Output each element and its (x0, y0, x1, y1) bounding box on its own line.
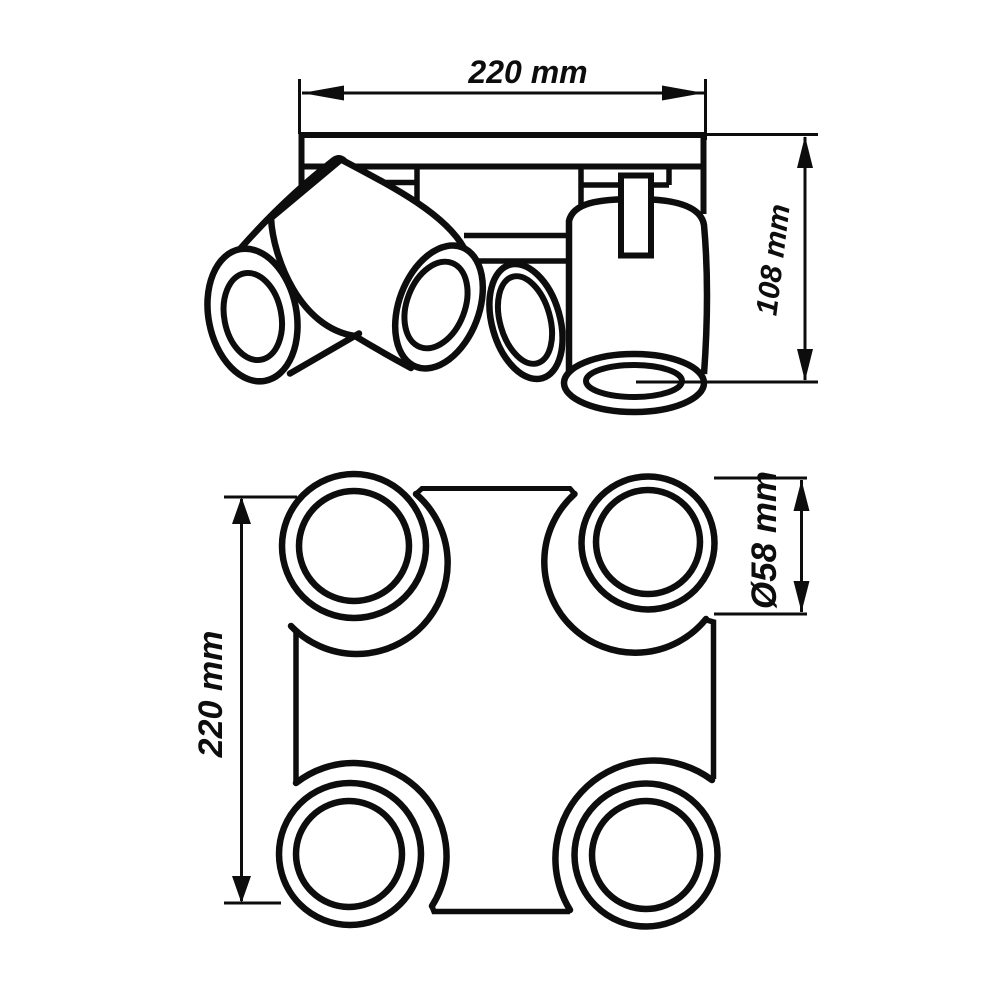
svg-text:220 mm: 220 mm (192, 631, 230, 759)
svg-text:220 mm: 220 mm (467, 54, 587, 90)
svg-text:Ø58 mm: Ø58 mm (745, 471, 784, 609)
